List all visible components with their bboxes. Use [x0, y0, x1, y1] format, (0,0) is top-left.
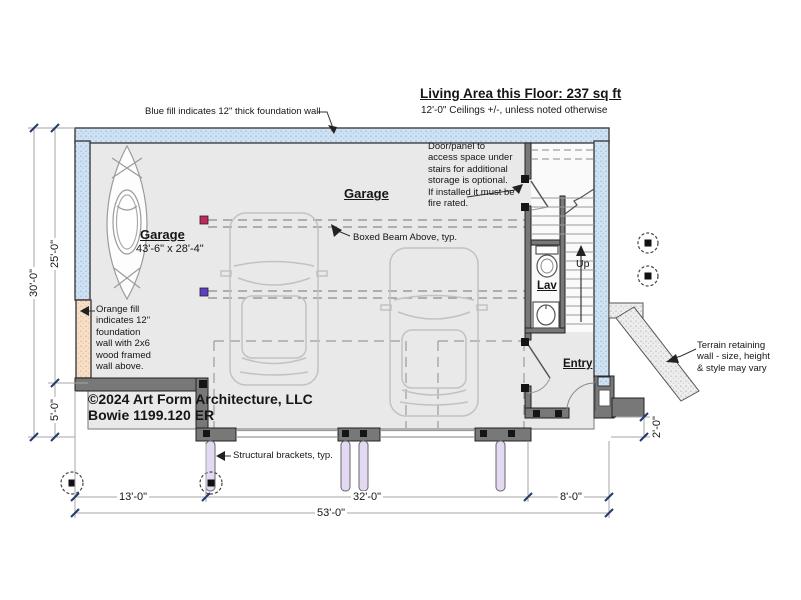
floor-plan-page: Living Area this Floor: 237 sq ft 12'-0"… — [0, 0, 801, 600]
copyright-line1: ©2024 Art Form Architecture, LLC — [88, 391, 313, 407]
brackets-note: Structural brackets, typ. — [233, 450, 333, 461]
living-area-title: Living Area this Floor: 237 sq ft — [420, 86, 621, 101]
ceiling-note: 12'-0" Ceilings +/-, unless noted otherw… — [421, 105, 607, 116]
dim-left-bay: 13'-0" — [117, 491, 149, 503]
blue-wall-note: Blue fill indicates 12" thick foundation… — [145, 106, 321, 117]
dim-center-bay: 32'-0" — [351, 491, 383, 503]
dim-porch-depth: 5'-0" — [49, 397, 61, 423]
garage-label: Garage — [140, 227, 185, 242]
entry-window — [598, 377, 610, 386]
orange-wall-note: Orange fill indicates 12" foundation wal… — [96, 304, 164, 372]
floor-plan-drawing — [0, 0, 801, 600]
sink-icon — [533, 302, 559, 328]
terrain-note: Terrain retaining wall - size, height & … — [697, 340, 797, 374]
garage-size-label: 43'-6" x 28'-4" — [136, 243, 204, 255]
copyright-line2: Bowie 1199.120 ER — [88, 407, 214, 423]
up-label: Up — [576, 258, 589, 270]
boxed-beam-note: Boxed Beam Above, typ. — [353, 232, 457, 243]
entry-wall-panel — [599, 390, 610, 406]
structural-brackets — [206, 441, 505, 491]
entry-label: Entry — [563, 358, 592, 370]
dim-right-bay: 8'-0" — [558, 491, 584, 503]
dim-main-depth: 25'-0" — [49, 238, 61, 270]
garage-label-2: Garage — [344, 186, 389, 201]
terrain-retaining-wall — [609, 303, 699, 401]
lav-label: Lav — [537, 280, 557, 292]
dim-entry-step: 2'-0" — [651, 414, 663, 440]
dim-overall-width: 53'-0" — [315, 507, 347, 519]
dim-overall-depth: 30'-0" — [28, 267, 40, 299]
under-stairs-note: Door/panel to access space under stairs … — [428, 141, 524, 209]
toilet-icon — [536, 246, 558, 277]
